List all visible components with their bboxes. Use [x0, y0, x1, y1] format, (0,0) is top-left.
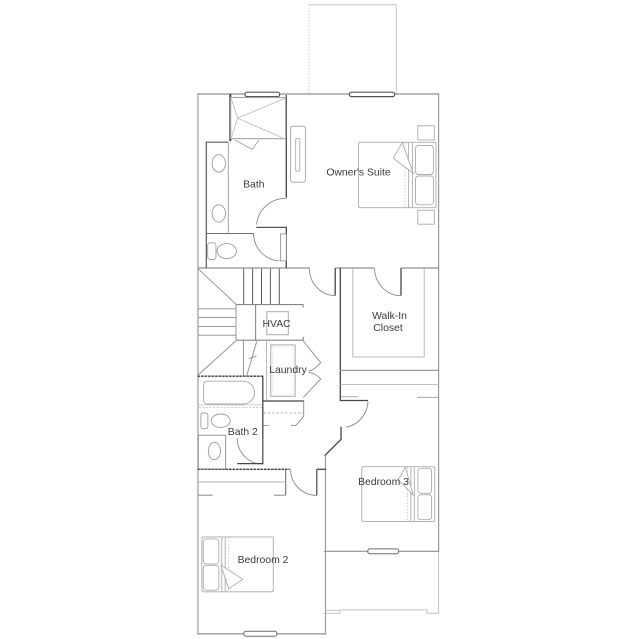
svg-text:Laundry: Laundry	[269, 365, 307, 376]
svg-text:Bedroom 2: Bedroom 2	[238, 555, 289, 566]
svg-text:Bath 2: Bath 2	[228, 427, 258, 438]
svg-text:HVAC: HVAC	[263, 319, 292, 330]
svg-text:Bath: Bath	[243, 180, 265, 191]
svg-text:Walk-In: Walk-In	[372, 311, 407, 322]
svg-text:Bedroom 3: Bedroom 3	[358, 477, 409, 488]
svg-text:Closet: Closet	[373, 323, 403, 334]
svg-text:Owner's Suite: Owner's Suite	[326, 168, 391, 179]
